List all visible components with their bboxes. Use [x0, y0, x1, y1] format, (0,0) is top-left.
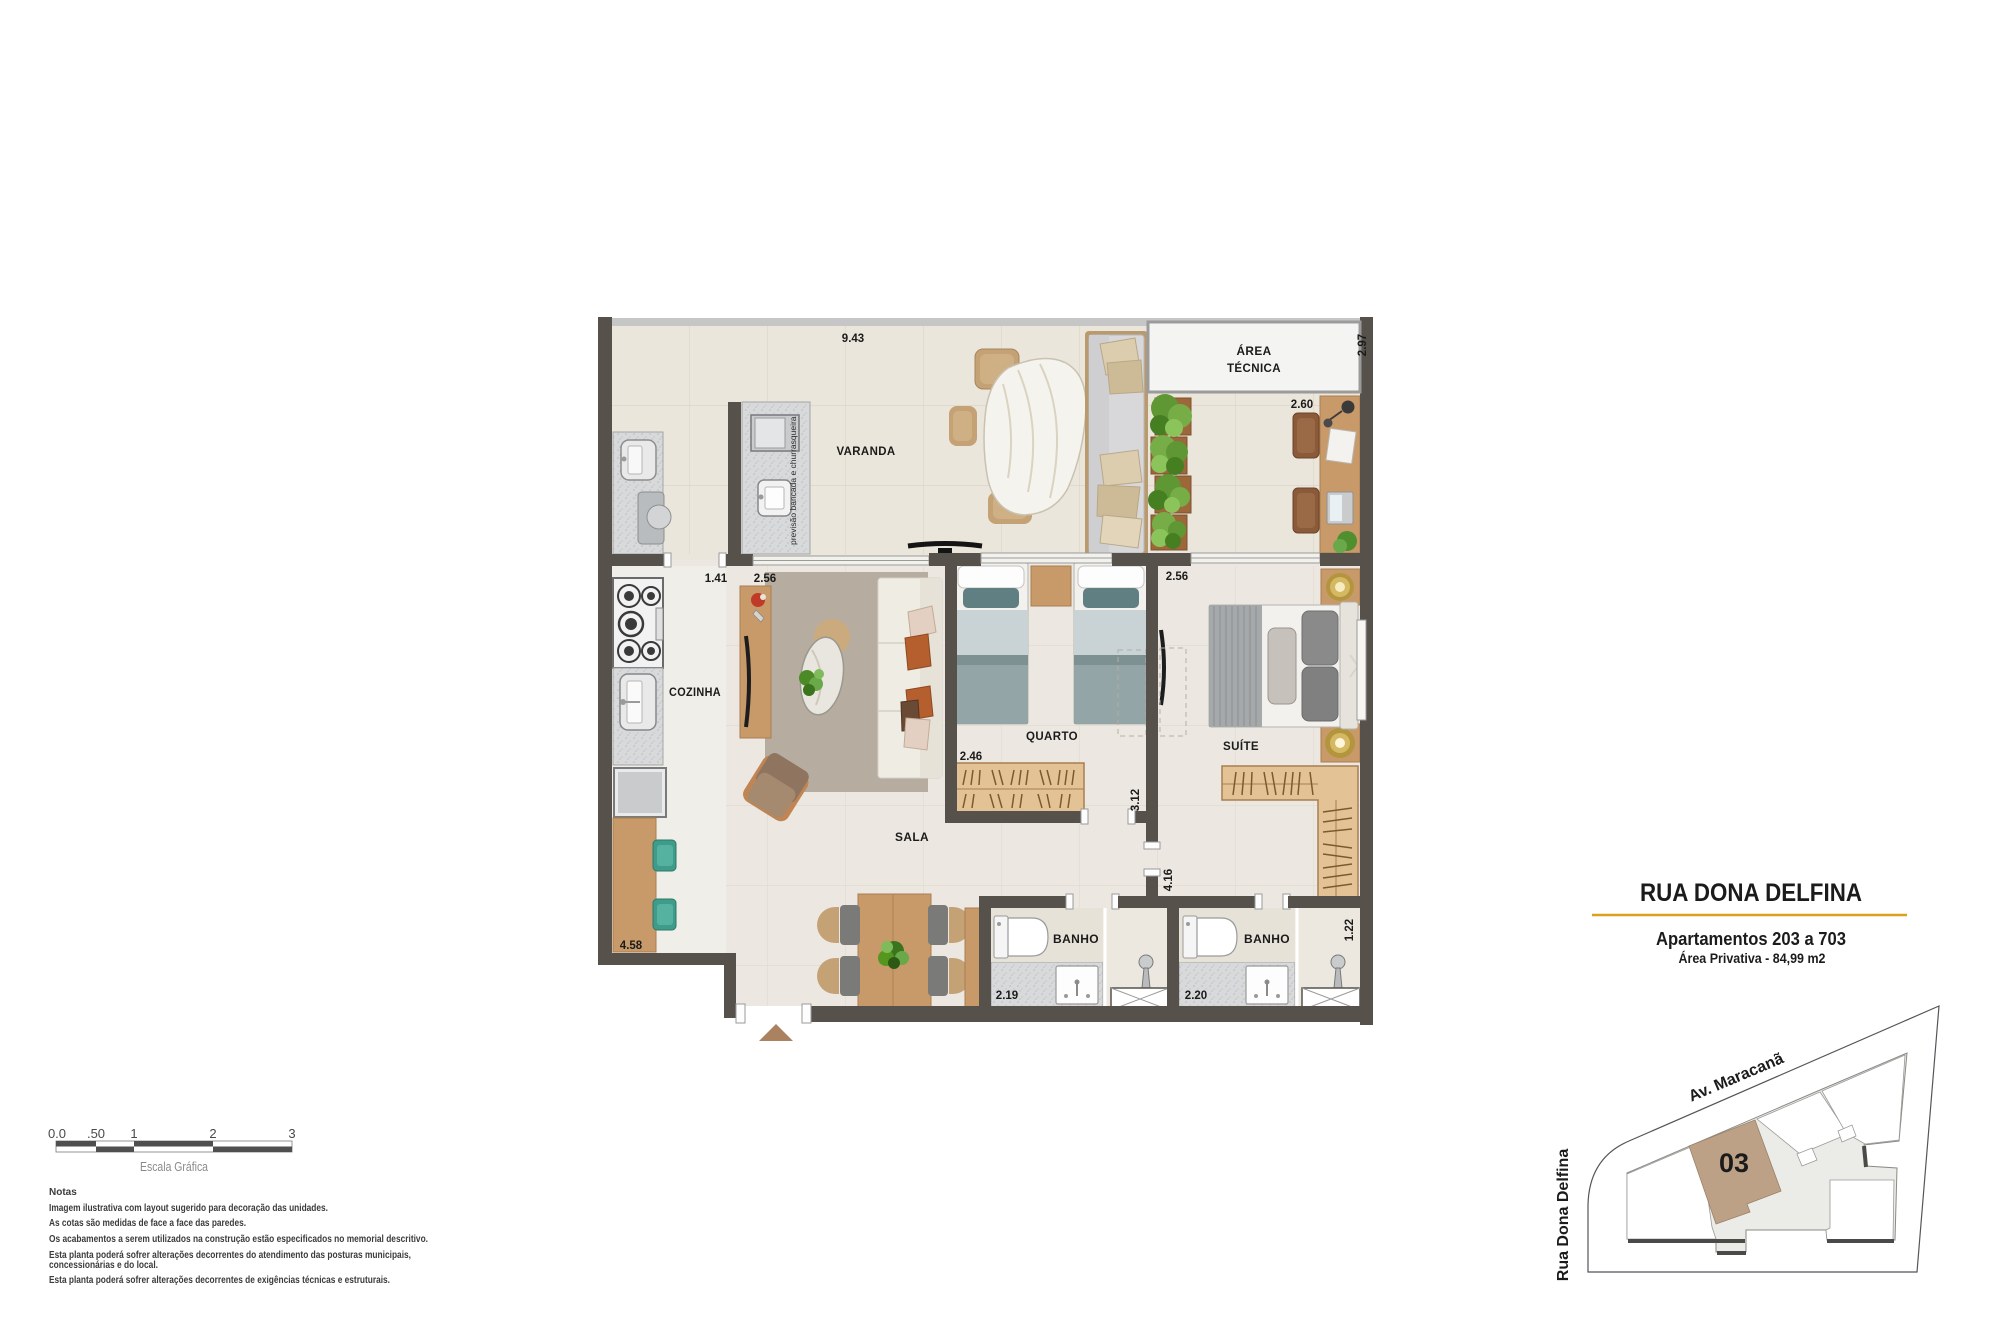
svg-text:0.0: 0.0 — [48, 1126, 66, 1141]
svg-text:Os acabamentos a serem utiliza: Os acabamentos a serem utilizados na con… — [49, 1234, 428, 1245]
svg-text:QUARTO: QUARTO — [1026, 729, 1078, 743]
svg-text:Apartamentos 203 a 703: Apartamentos 203 a 703 — [1656, 929, 1846, 949]
svg-text:Área Privativa - 84,99 m2: Área Privativa - 84,99 m2 — [1679, 951, 1826, 966]
svg-text:1.41: 1.41 — [705, 573, 728, 585]
svg-text:3: 3 — [288, 1126, 295, 1141]
svg-text:2: 2 — [209, 1126, 216, 1141]
svg-text:COZINHA: COZINHA — [669, 685, 721, 699]
svg-text:SALA: SALA — [895, 830, 929, 844]
svg-text:2.46: 2.46 — [960, 751, 982, 763]
svg-text:TÉCNICA: TÉCNICA — [1227, 360, 1281, 375]
svg-text:1.22: 1.22 — [1344, 919, 1356, 941]
svg-text:4.16: 4.16 — [1163, 869, 1175, 891]
svg-text:Imagem ilustrativa com layout: Imagem ilustrativa com layout sugerido p… — [49, 1203, 328, 1214]
svg-text:4.58: 4.58 — [620, 940, 643, 952]
svg-text:2.97: 2.97 — [1357, 334, 1369, 356]
svg-text:VARANDA: VARANDA — [837, 444, 896, 458]
svg-text:2.56: 2.56 — [754, 573, 776, 585]
svg-text:3.12: 3.12 — [1130, 789, 1142, 811]
svg-text:2.60: 2.60 — [1291, 399, 1313, 411]
svg-text:03: 03 — [1719, 1148, 1749, 1178]
svg-text:ÁREA: ÁREA — [1237, 343, 1272, 358]
svg-text:SUÍTE: SUÍTE — [1223, 738, 1259, 753]
svg-text:2.20: 2.20 — [1185, 990, 1207, 1002]
svg-text:concessionárias e do local.: concessionárias e do local. — [49, 1260, 158, 1271]
svg-text:Esta planta poderá sofrer alte: Esta planta poderá sofrer alterações dec… — [49, 1275, 390, 1286]
svg-text:2.56: 2.56 — [1166, 571, 1188, 583]
svg-text:9.43: 9.43 — [842, 333, 864, 345]
svg-text:previsão bancada e churrasquei: previsão bancada e churrasqueira — [788, 416, 798, 545]
svg-text:BANHO: BANHO — [1244, 932, 1290, 946]
svg-text:As cotas são medidas de face a: As cotas são medidas de face a face das … — [49, 1218, 246, 1229]
svg-text:Escala Gráfica: Escala Gráfica — [140, 1160, 208, 1174]
svg-text:1: 1 — [130, 1126, 137, 1141]
svg-text:Rua Dona Delfina: Rua Dona Delfina — [1555, 1149, 1572, 1282]
svg-text:.50: .50 — [87, 1126, 105, 1141]
svg-text:BANHO: BANHO — [1053, 932, 1099, 946]
svg-text:RUA DONA DELFINA: RUA DONA DELFINA — [1640, 879, 1862, 907]
svg-text:Notas: Notas — [49, 1187, 77, 1198]
svg-text:2.19: 2.19 — [996, 990, 1018, 1002]
